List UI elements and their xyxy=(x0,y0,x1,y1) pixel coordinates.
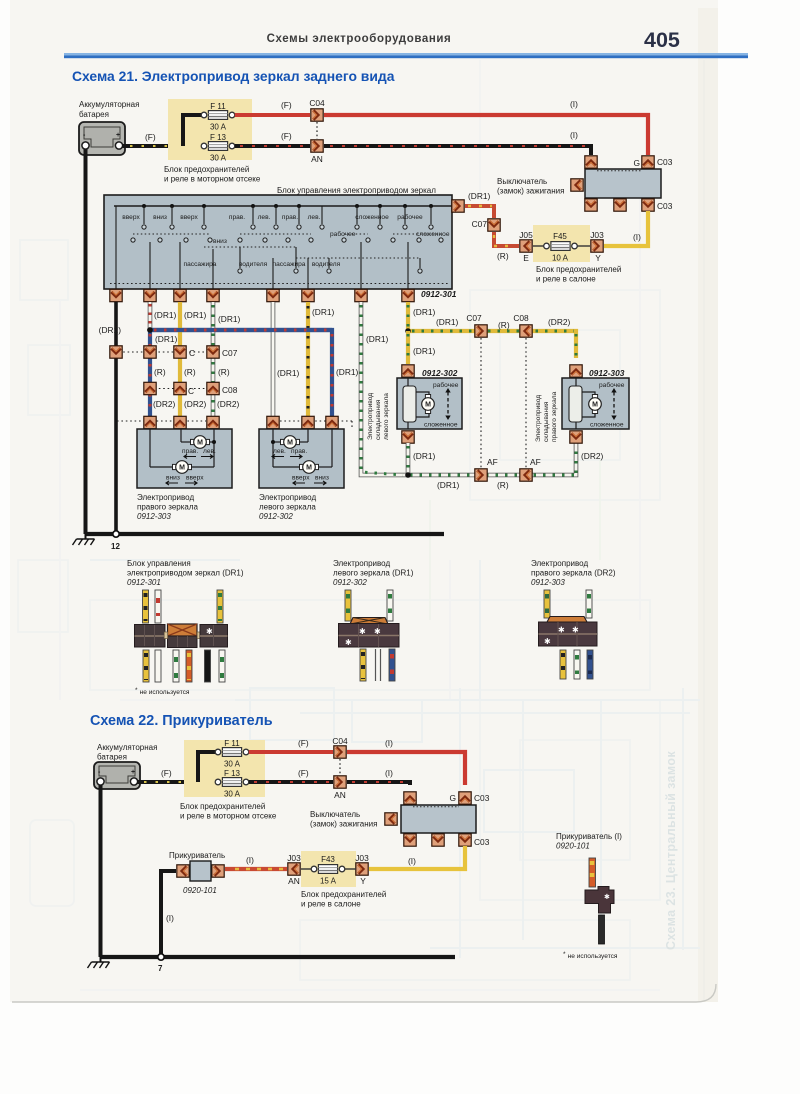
svg-text:(F): (F) xyxy=(281,100,292,110)
svg-text:(I): (I) xyxy=(633,232,641,242)
svg-text:(R): (R) xyxy=(497,480,509,490)
svg-text:AF: AF xyxy=(487,457,498,467)
svg-text:(DR2): (DR2) xyxy=(217,399,240,409)
svg-text:0912-302: 0912-302 xyxy=(259,512,293,521)
svg-text:C: C xyxy=(188,386,194,396)
svg-text:Электропривод: Электропривод xyxy=(531,559,588,568)
svg-text:Схема 21. Электропривод зеркал: Схема 21. Электропривод зеркал заднего в… xyxy=(72,68,395,84)
svg-text:сложенное: сложенное xyxy=(590,422,624,429)
svg-text:водителя: водителя xyxy=(312,261,341,268)
svg-text:✱: ✱ xyxy=(359,627,366,636)
svg-text:(I): (I) xyxy=(408,856,416,866)
svg-text:(DR2): (DR2) xyxy=(153,399,176,409)
svg-text:0912-303: 0912-303 xyxy=(137,512,171,521)
svg-text:лев.: лев. xyxy=(308,214,321,221)
svg-text:(DR1): (DR1) xyxy=(413,307,436,317)
svg-text:(DR1): (DR1) xyxy=(437,480,460,490)
svg-text:E: E xyxy=(523,253,529,263)
svg-text:G: G xyxy=(449,793,456,803)
svg-text:15 A: 15 A xyxy=(320,877,337,886)
svg-text:сложенное: сложенное xyxy=(424,422,458,429)
svg-text:C03: C03 xyxy=(657,201,673,211)
svg-text:Электропривод: Электропривод xyxy=(367,393,374,440)
svg-text:рабочее: рабочее xyxy=(599,381,625,389)
svg-text:(I): (I) xyxy=(246,855,254,865)
svg-text:Электропривод: Электропривод xyxy=(137,493,194,502)
svg-text:0920-101: 0920-101 xyxy=(556,842,590,851)
svg-text:Выключатель: Выключатель xyxy=(497,177,547,186)
svg-text:правого зеркала: правого зеркала xyxy=(551,391,558,442)
svg-text:правого зеркала (DR2): правого зеркала (DR2) xyxy=(531,569,616,578)
svg-text:J03: J03 xyxy=(287,853,301,863)
svg-text:10 A: 10 A xyxy=(552,254,569,263)
svg-text:✱: ✱ xyxy=(544,637,551,646)
svg-text:AN: AN xyxy=(288,876,300,886)
svg-text:вниз: вниз xyxy=(213,238,227,245)
svg-text:AN: AN xyxy=(311,154,323,164)
svg-text:Схема 22. Прикуриватель: Схема 22. Прикуриватель xyxy=(90,713,273,729)
svg-text:F45: F45 xyxy=(553,232,567,241)
svg-text:Выключатель: Выключатель xyxy=(310,810,360,819)
svg-text:электроприводом зеркал (DR1): электроприводом зеркал (DR1) xyxy=(127,569,244,578)
svg-text:вверх: вверх xyxy=(122,214,140,221)
svg-text:(R): (R) xyxy=(218,367,230,377)
svg-text:0920-101: 0920-101 xyxy=(183,886,217,895)
svg-text:Схема 23. Центральный замок: Схема 23. Центральный замок xyxy=(664,751,678,950)
svg-text:J03: J03 xyxy=(590,230,604,240)
svg-text:(DR1): (DR1) xyxy=(218,314,241,324)
svg-text:батарея: батарея xyxy=(79,110,109,119)
svg-text:(DR1): (DR1) xyxy=(184,310,207,320)
svg-text:Электропривод: Электропривод xyxy=(333,559,390,568)
svg-text:правого зеркала: правого зеркала xyxy=(137,503,199,512)
svg-text:(DR2): (DR2) xyxy=(548,317,571,327)
svg-text:прав.: прав. xyxy=(229,214,245,221)
svg-text:прав.: прав. xyxy=(182,448,198,455)
svg-text:пассажира: пассажира xyxy=(273,261,306,268)
svg-text:30 A: 30 A xyxy=(210,154,227,163)
svg-text:30 A: 30 A xyxy=(224,760,241,769)
svg-text:0912-301: 0912-301 xyxy=(421,289,457,299)
svg-text:водителя: водителя xyxy=(239,261,268,268)
svg-text:0912-302: 0912-302 xyxy=(422,368,458,378)
svg-text:(R): (R) xyxy=(154,367,166,377)
svg-text:рабочее: рабочее xyxy=(397,213,423,221)
svg-text:*не используется: *не используется xyxy=(135,687,190,696)
svg-text:вниз: вниз xyxy=(166,475,180,482)
svg-text:батарея: батарея xyxy=(97,753,127,762)
svg-text:(DR1): (DR1) xyxy=(312,307,335,317)
svg-text:30 A: 30 A xyxy=(210,123,227,132)
svg-text:0912-302: 0912-302 xyxy=(333,578,367,587)
svg-text:J05: J05 xyxy=(519,230,533,240)
svg-text:(I): (I) xyxy=(166,913,174,923)
svg-text:(DR2): (DR2) xyxy=(581,451,604,461)
svg-text:405: 405 xyxy=(644,28,680,52)
svg-text:*не используется: *не используется xyxy=(563,951,618,960)
svg-text:вверх: вверх xyxy=(180,214,198,221)
svg-text:рабочее: рабочее xyxy=(330,230,356,238)
svg-text:✱: ✱ xyxy=(558,626,565,635)
svg-text:C: C xyxy=(189,348,195,358)
svg-text:C07: C07 xyxy=(222,348,238,358)
svg-text:Электропривод: Электропривод xyxy=(535,395,542,442)
svg-text:Аккумуляторная: Аккумуляторная xyxy=(79,100,139,109)
svg-text:F 11: F 11 xyxy=(224,739,240,748)
svg-text:Блок предохранителей: Блок предохранителей xyxy=(180,802,265,811)
svg-text:(F): (F) xyxy=(298,738,309,748)
svg-text:(DR1): (DR1) xyxy=(436,317,459,327)
svg-text:C03: C03 xyxy=(474,793,490,803)
svg-text:F 11: F 11 xyxy=(210,102,226,111)
svg-text:(DR1): (DR1) xyxy=(413,451,436,461)
svg-text:(DR1): (DR1) xyxy=(413,346,436,356)
svg-text:(F): (F) xyxy=(145,132,156,142)
svg-text:C04: C04 xyxy=(332,736,348,746)
svg-text:(R): (R) xyxy=(498,320,510,330)
svg-text:(DR1): (DR1) xyxy=(336,367,359,377)
svg-text:левого зеркала: левого зеркала xyxy=(383,393,390,440)
svg-text:пассажира: пассажира xyxy=(184,261,217,268)
svg-text:и реле в моторном отсеке: и реле в моторном отсеке xyxy=(180,812,277,821)
svg-text:✱: ✱ xyxy=(345,638,352,647)
svg-text:Прикуриватель: Прикуриватель xyxy=(169,851,225,860)
svg-text:левого зеркала: левого зеркала xyxy=(259,503,316,512)
svg-text:(DR1): (DR1) xyxy=(366,334,389,344)
svg-text:12: 12 xyxy=(111,542,120,551)
svg-text:(I): (I) xyxy=(385,768,393,778)
svg-text:Блок управления: Блок управления xyxy=(127,559,191,568)
svg-text:(I): (I) xyxy=(570,130,578,140)
svg-text:сложенное: сложенное xyxy=(355,214,389,221)
svg-text:вниз: вниз xyxy=(153,214,167,221)
svg-text:(DR1): (DR1) xyxy=(277,368,300,378)
svg-text:✱: ✱ xyxy=(604,893,610,901)
svg-text:+: + xyxy=(116,132,120,139)
svg-text:F 13: F 13 xyxy=(224,769,241,778)
svg-text:лев.: лев. xyxy=(203,448,216,455)
svg-text:(DR1): (DR1) xyxy=(99,325,122,335)
svg-text:F 13: F 13 xyxy=(210,133,227,142)
svg-text:C03: C03 xyxy=(474,837,490,847)
svg-text:и реле в салоне: и реле в салоне xyxy=(301,900,361,909)
svg-text:лев.: лев. xyxy=(258,214,271,221)
svg-text:прав.: прав. xyxy=(282,214,298,221)
svg-text:(F): (F) xyxy=(281,131,292,141)
svg-text:✱: ✱ xyxy=(572,626,579,635)
svg-text:и реле в моторном отсеке: и реле в моторном отсеке xyxy=(164,175,261,184)
svg-text:Блок управления электроприводо: Блок управления электроприводом зеркал xyxy=(277,186,436,195)
svg-text:F43: F43 xyxy=(321,855,335,864)
svg-text:сложенное: сложенное xyxy=(416,231,450,238)
svg-text:(DR1): (DR1) xyxy=(468,191,491,201)
svg-text:(I): (I) xyxy=(570,99,578,109)
svg-text:(F): (F) xyxy=(298,768,309,778)
svg-text:Электропривод: Электропривод xyxy=(259,493,316,502)
svg-text:вверх: вверх xyxy=(292,475,310,482)
svg-text:(DR2): (DR2) xyxy=(184,399,207,409)
svg-text:0912-303: 0912-303 xyxy=(589,368,625,378)
svg-text:Y: Y xyxy=(360,876,366,886)
svg-text:(I): (I) xyxy=(385,738,393,748)
svg-text:Блок предохранителей: Блок предохранителей xyxy=(164,165,249,174)
svg-text:(замок) зажигания: (замок) зажигания xyxy=(497,187,564,196)
svg-text:C04: C04 xyxy=(309,98,325,108)
svg-text:Блок предохранителей: Блок предохранителей xyxy=(536,265,621,274)
svg-text:(замок) зажигания: (замок) зажигания xyxy=(310,820,377,829)
svg-text:(R): (R) xyxy=(497,251,509,261)
svg-text:✱: ✱ xyxy=(206,627,213,636)
svg-text:C08: C08 xyxy=(222,385,238,395)
svg-text:Блок предохранителей: Блок предохранителей xyxy=(301,890,386,899)
svg-text:Аккумуляторная: Аккумуляторная xyxy=(97,743,157,752)
svg-text:(DR1): (DR1) xyxy=(155,334,178,344)
svg-text:(DR1): (DR1) xyxy=(154,310,177,320)
svg-text:C07: C07 xyxy=(472,219,488,229)
svg-text:вниз: вниз xyxy=(315,475,329,482)
svg-text:0912-303: 0912-303 xyxy=(531,578,565,587)
svg-text:+: + xyxy=(131,769,135,776)
svg-text:вверх: вверх xyxy=(186,475,204,482)
svg-text:30 A: 30 A xyxy=(224,790,241,799)
svg-text:лев.: лев. xyxy=(273,448,286,455)
svg-text:рабочее: рабочее xyxy=(433,381,459,389)
svg-text:C08: C08 xyxy=(513,313,529,323)
svg-text:✱: ✱ xyxy=(374,627,381,636)
svg-text:Схемы электрооборудования: Схемы электрооборудования xyxy=(267,33,452,45)
svg-text:J03: J03 xyxy=(355,853,369,863)
svg-text:прав.: прав. xyxy=(291,448,307,455)
svg-text:0912-301: 0912-301 xyxy=(127,578,161,587)
svg-text:Прикуриватель (I): Прикуриватель (I) xyxy=(556,832,622,841)
svg-text:складывания: складывания xyxy=(375,399,382,440)
svg-text:складывания: складывания xyxy=(543,401,550,442)
svg-text:и реле в салоне: и реле в салоне xyxy=(536,275,596,284)
svg-text:C07: C07 xyxy=(466,313,482,323)
svg-text:C03: C03 xyxy=(657,157,673,167)
svg-text:AN: AN xyxy=(334,790,346,800)
svg-text:AF: AF xyxy=(530,457,541,467)
svg-text:7: 7 xyxy=(158,964,163,973)
svg-text:Y: Y xyxy=(595,253,601,263)
svg-text:(R): (R) xyxy=(184,367,196,377)
svg-text:(F): (F) xyxy=(161,768,172,778)
svg-text:левого зеркала (DR1): левого зеркала (DR1) xyxy=(333,569,414,578)
svg-text:G: G xyxy=(633,158,640,168)
